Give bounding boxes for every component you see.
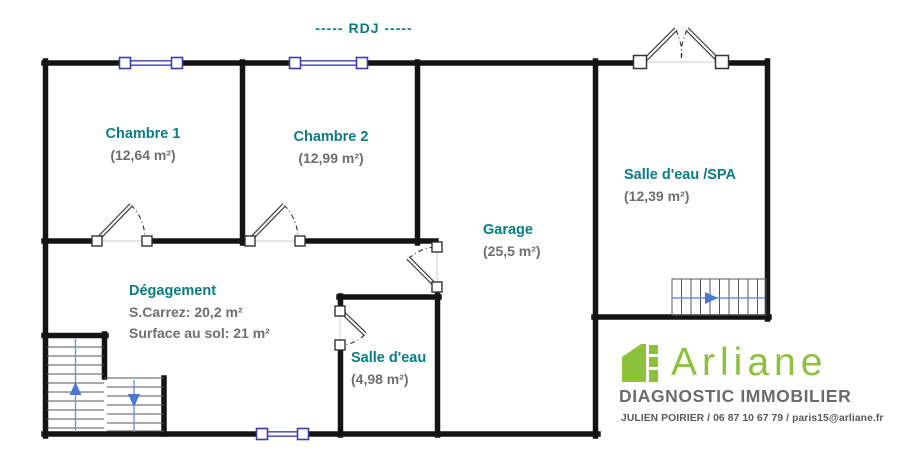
room-label-garage: Garage (25,5 m²)	[483, 220, 541, 262]
room-name: Chambre 1	[83, 124, 203, 145]
door-entry-double	[634, 29, 729, 69]
room-label-chambre2: Chambre 2 (12,99 m²)	[271, 127, 391, 169]
arliane-logo: Arliane DIAGNOSTIC IMMOBILIER JULIEN POI…	[617, 340, 885, 424]
room-area: (25,5 m²)	[483, 241, 541, 262]
room-name: Salle d'eau	[351, 348, 426, 369]
room-area: (4,98 m²)	[351, 369, 426, 390]
room-area: (12,99 m²)	[271, 148, 391, 169]
window-chambre1	[120, 58, 183, 69]
room-label-salle-eau: Salle d'eau (4,98 m²)	[351, 348, 426, 390]
room-name: Garage	[483, 220, 541, 241]
door-garage	[408, 242, 442, 292]
door-salle-eau	[335, 306, 365, 350]
stairs-up-arrow-icon	[70, 382, 82, 395]
room-name: Chambre 2	[271, 127, 391, 148]
room-label-degagement: Dégagement S.Carrez: 20,2 m² Surface au …	[129, 281, 270, 344]
room-label-chambre1: Chambre 1 (12,64 m²)	[83, 124, 203, 166]
door-chambre2	[245, 205, 305, 246]
room-name: Dégagement	[129, 281, 270, 302]
window-degagement	[257, 429, 309, 440]
arliane-house-icon	[617, 340, 663, 383]
floor-plan-page: ----- RDJ ----- Chambre 1 (12,64 m²) Cha…	[0, 0, 899, 458]
floor-title: ----- RDJ -----	[264, 20, 464, 36]
logo-contact-text: JULIEN POIRIER / 06 87 10 67 79 / paris1…	[621, 413, 885, 424]
window-chambre2	[290, 58, 368, 69]
room-floor-area: Surface au sol: 21 m²	[129, 323, 270, 344]
logo-tagline-text: DIAGNOSTIC IMMOBILIER	[619, 386, 885, 407]
room-name: Salle d'eau /SPA	[624, 165, 736, 186]
room-area: (12,39 m²)	[624, 186, 736, 207]
staircase-spa	[672, 279, 766, 315]
stairs-right-arrow-icon	[705, 292, 718, 304]
room-label-spa: Salle d'eau /SPA (12,39 m²)	[624, 165, 736, 207]
room-area: (12,64 m²)	[83, 145, 203, 166]
door-chambre1	[92, 205, 152, 246]
room-carrez-area: S.Carrez: 20,2 m²	[129, 302, 270, 323]
logo-brand-text: Arliane	[671, 343, 827, 383]
